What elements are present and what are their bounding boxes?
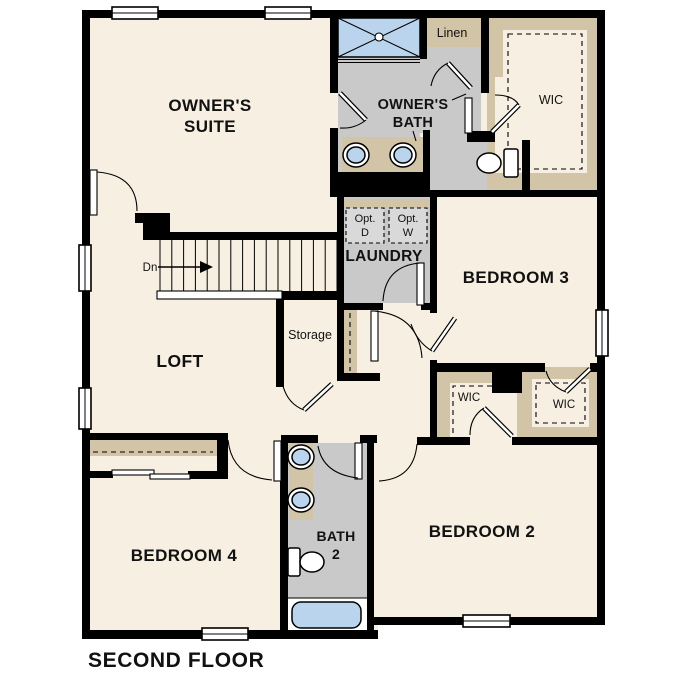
bathtub <box>292 602 361 628</box>
wall <box>281 435 318 443</box>
door-leaf <box>417 263 424 305</box>
owners-wic-label: WIC <box>539 93 563 107</box>
wall <box>423 130 430 192</box>
wall <box>417 437 430 445</box>
door-leaf <box>465 98 472 133</box>
closet-front-stub <box>90 471 113 478</box>
door-leaf <box>274 441 281 481</box>
exterior-wall-left <box>82 10 90 639</box>
toilet-tank-icon <box>504 149 518 177</box>
sink-basin-icon <box>394 147 412 163</box>
bedroom4-label: BEDROOM 4 <box>131 546 238 565</box>
exterior-wall-top <box>82 10 605 18</box>
owners-bath-label: OWNER'S <box>378 97 449 113</box>
wall <box>430 437 470 445</box>
wall <box>430 190 437 313</box>
wall <box>512 437 597 445</box>
wall <box>337 197 344 375</box>
owners-bath-label: BATH <box>393 115 433 131</box>
bypass-door-panel <box>150 474 190 479</box>
bedroom2-wic-label: WIC <box>458 392 480 404</box>
wall <box>420 15 427 59</box>
floor-plan-drawing: OWNER'S SUITE OWNER'S BATH Linen WIC Opt… <box>0 0 687 687</box>
bath2-label: 2 <box>332 546 340 562</box>
laundry-label: LAUNDRY <box>345 248 423 265</box>
wall <box>90 433 218 440</box>
bedroom2-label: BEDROOM 2 <box>429 522 536 541</box>
opt-dryer-label: D <box>361 227 369 239</box>
bath2-label: BATH <box>316 528 355 544</box>
owners-suite-label: SUITE <box>184 117 236 136</box>
wall <box>135 213 143 223</box>
wall-block-between-wics <box>492 367 522 393</box>
wall <box>337 373 380 381</box>
opt-washer-label: Opt. <box>398 213 419 225</box>
wall <box>170 232 338 240</box>
opt-dryer-label: Opt. <box>355 213 376 225</box>
wall <box>430 363 545 372</box>
shower-drain-icon <box>375 33 383 41</box>
wall <box>276 291 284 387</box>
wall <box>367 435 374 639</box>
toilet-icon <box>477 153 501 173</box>
sink-basin-icon <box>347 147 365 163</box>
stair-landing-rail <box>157 291 282 299</box>
page-title: SECOND FLOOR <box>88 649 264 672</box>
stairs-down-label: Dn <box>143 262 158 274</box>
stair-newel-block <box>143 213 170 240</box>
owners-suite-label: OWNER'S <box>168 96 251 115</box>
closet-front-stub <box>188 471 217 479</box>
wall <box>430 360 437 445</box>
bedroom3-wic-label: WIC <box>553 399 575 411</box>
door-leaf <box>371 311 378 361</box>
loft-label: LOFT <box>156 351 203 371</box>
toilet-icon <box>300 552 324 572</box>
bedroom3-label: BEDROOM 3 <box>463 268 570 287</box>
floor-plan: OWNER'S SUITE OWNER'S BATH Linen WIC Opt… <box>0 0 687 687</box>
door-leaf <box>90 170 97 215</box>
sink-basin-icon <box>292 492 310 508</box>
wall <box>337 303 383 310</box>
laundry-counter <box>344 199 430 208</box>
wall <box>330 128 338 190</box>
linen-label: Linen <box>437 26 468 40</box>
bedroom4-closet-shelf <box>88 440 217 456</box>
wall <box>330 190 605 197</box>
wall <box>330 15 338 93</box>
door-leaf <box>355 443 362 479</box>
wall <box>276 291 344 300</box>
wall <box>217 433 228 479</box>
toilet-tank-icon <box>288 548 300 576</box>
opt-washer-label: W <box>403 227 414 239</box>
sink-basin-icon <box>292 449 310 465</box>
wall <box>522 140 530 192</box>
wall <box>481 15 489 93</box>
bypass-door-panel <box>112 470 154 475</box>
storage-label: Storage <box>288 328 332 342</box>
